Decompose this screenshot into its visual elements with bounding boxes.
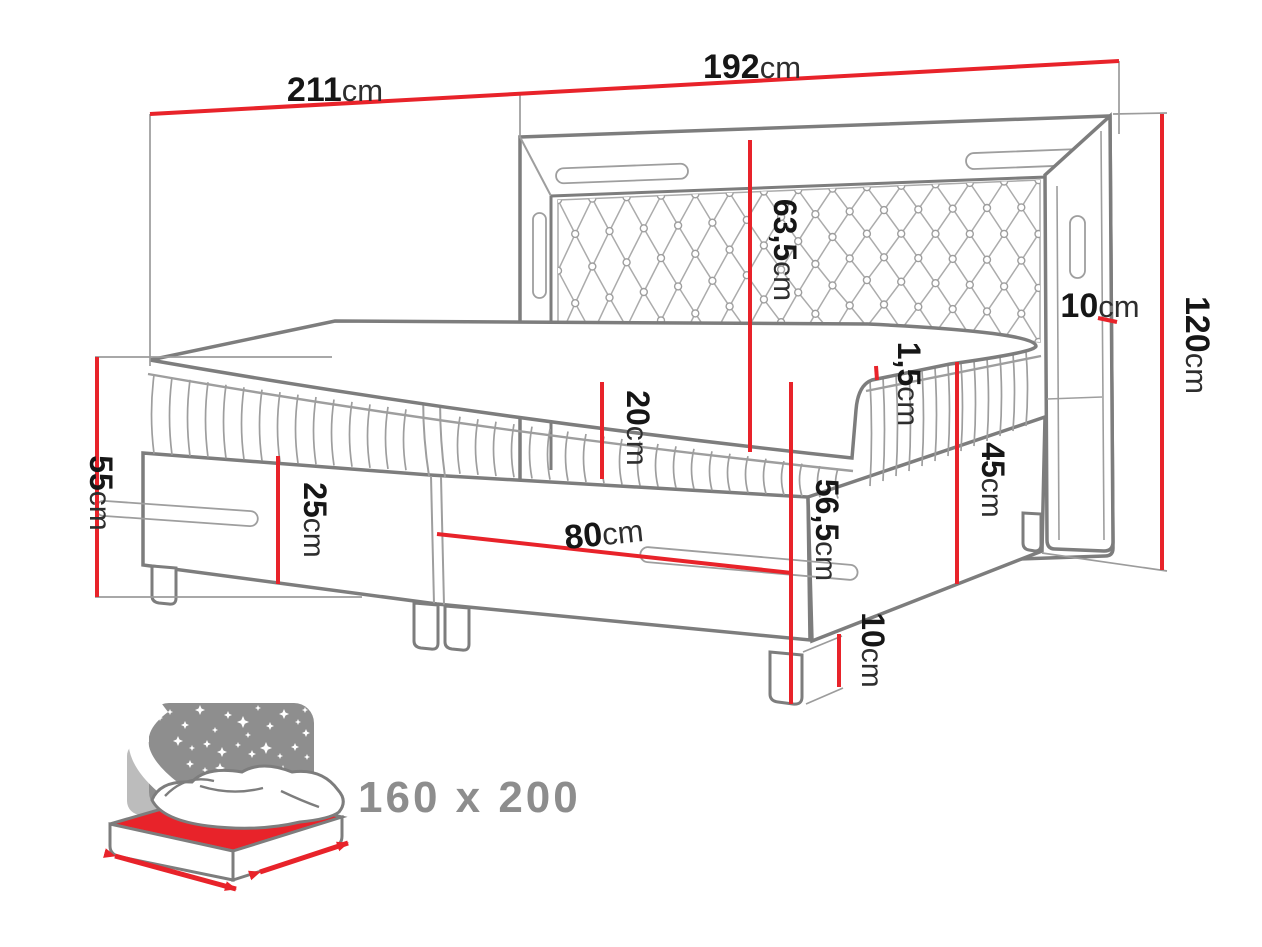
dim-line-topper xyxy=(876,366,877,380)
label-frame-bar-width: 10cm xyxy=(1060,287,1139,325)
label-base-corner-height: 45cm xyxy=(975,442,1011,518)
label-topper-thickness: 1,5cm xyxy=(891,342,927,426)
label-side-height: 55cm xyxy=(83,455,119,531)
diagram-canvas: 211cm 192cm 120cm 10cm 63,5cm 1,5cm 20cm… xyxy=(0,0,1262,947)
leg-far-right xyxy=(1023,513,1041,551)
bed-dimension-diagram: 211cm 192cm 120cm 10cm 63,5cm 1,5cm 20cm… xyxy=(0,0,1262,947)
size-badge: 160 x 200 xyxy=(110,703,581,889)
leg-middle-2 xyxy=(445,606,469,650)
label-headboard-panel-height: 63,5cm xyxy=(767,199,803,301)
size-badge-label: 160 x 200 xyxy=(358,773,581,822)
leg-front-corner xyxy=(770,652,802,704)
leg-left xyxy=(152,566,176,604)
leg-middle-1 xyxy=(414,603,438,649)
label-bed-length-total: 211cm xyxy=(287,71,383,109)
label-leg-height: 10cm xyxy=(855,612,891,688)
wall-panel-right-bar xyxy=(1045,116,1113,551)
label-headboard-width: 192cm xyxy=(703,48,801,86)
label-mattress-thickness: 20cm xyxy=(620,390,656,466)
label-drawer-front-height: 25cm xyxy=(297,482,333,558)
label-mattress-top-height: 56,5cm xyxy=(809,479,845,581)
label-headboard-height: 120cm xyxy=(1178,296,1216,394)
